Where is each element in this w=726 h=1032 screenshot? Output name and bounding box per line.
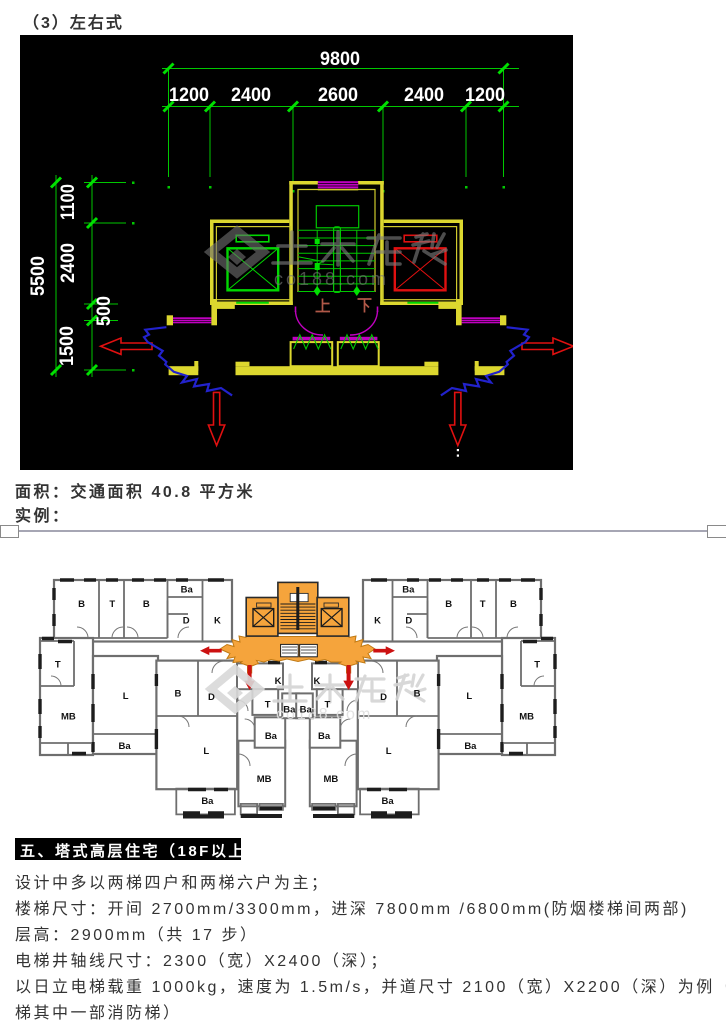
svg-text:5500: 5500 (28, 256, 49, 296)
svg-text:1200: 1200 (169, 85, 209, 106)
svg-text:Ba: Ba (283, 705, 296, 716)
svg-text:K: K (214, 616, 221, 627)
svg-text:2400: 2400 (231, 85, 271, 106)
svg-text:1100: 1100 (58, 184, 79, 220)
svg-text:Ba: Ba (181, 585, 194, 596)
svg-text:T: T (480, 599, 486, 610)
svg-text:Ba: Ba (318, 731, 331, 742)
svg-text:B: B (445, 599, 452, 610)
svg-text:2400: 2400 (58, 243, 79, 283)
svg-text:Ba: Ba (265, 731, 278, 742)
svg-text:MB: MB (324, 774, 339, 785)
svg-text:MB: MB (519, 712, 534, 723)
svg-text:K: K (374, 616, 381, 627)
svg-text:Ba: Ba (402, 585, 415, 596)
svg-text:Ba: Ba (382, 796, 395, 807)
svg-text:2600: 2600 (318, 85, 358, 106)
svg-text:Ba: Ba (201, 796, 214, 807)
svg-text:B: B (414, 689, 421, 700)
svg-text:D: D (208, 692, 215, 703)
svg-text:500: 500 (94, 296, 115, 326)
svg-text:T: T (534, 660, 540, 671)
svg-text:MB: MB (257, 774, 272, 785)
svg-text:L: L (386, 746, 392, 757)
svg-text:T: T (265, 700, 271, 711)
svg-text:B: B (143, 599, 150, 610)
svg-text:1500: 1500 (57, 326, 78, 366)
svg-text:Ba: Ba (119, 741, 132, 752)
svg-text:1200: 1200 (465, 85, 505, 106)
svg-text:T: T (324, 700, 330, 711)
svg-text:D: D (405, 616, 412, 627)
svg-text:L: L (123, 691, 129, 702)
svg-text:MB: MB (61, 712, 76, 723)
svg-text:D: D (183, 616, 190, 627)
svg-text:K: K (275, 676, 282, 687)
svg-text:B: B (174, 689, 181, 700)
svg-text:L: L (466, 691, 472, 702)
svg-text:2400: 2400 (404, 85, 444, 106)
svg-text:T: T (55, 660, 61, 671)
svg-text:Ba: Ba (464, 741, 477, 752)
svg-text:B: B (78, 599, 85, 610)
svg-text:Ba: Ba (300, 705, 313, 716)
svg-text:B: B (510, 599, 517, 610)
svg-text:9800: 9800 (320, 49, 360, 70)
svg-text:K: K (313, 676, 320, 687)
svg-text:L: L (203, 746, 209, 757)
svg-text:co188.com: co188.com (274, 269, 389, 289)
svg-text:T: T (109, 599, 115, 610)
svg-text:D: D (380, 692, 387, 703)
